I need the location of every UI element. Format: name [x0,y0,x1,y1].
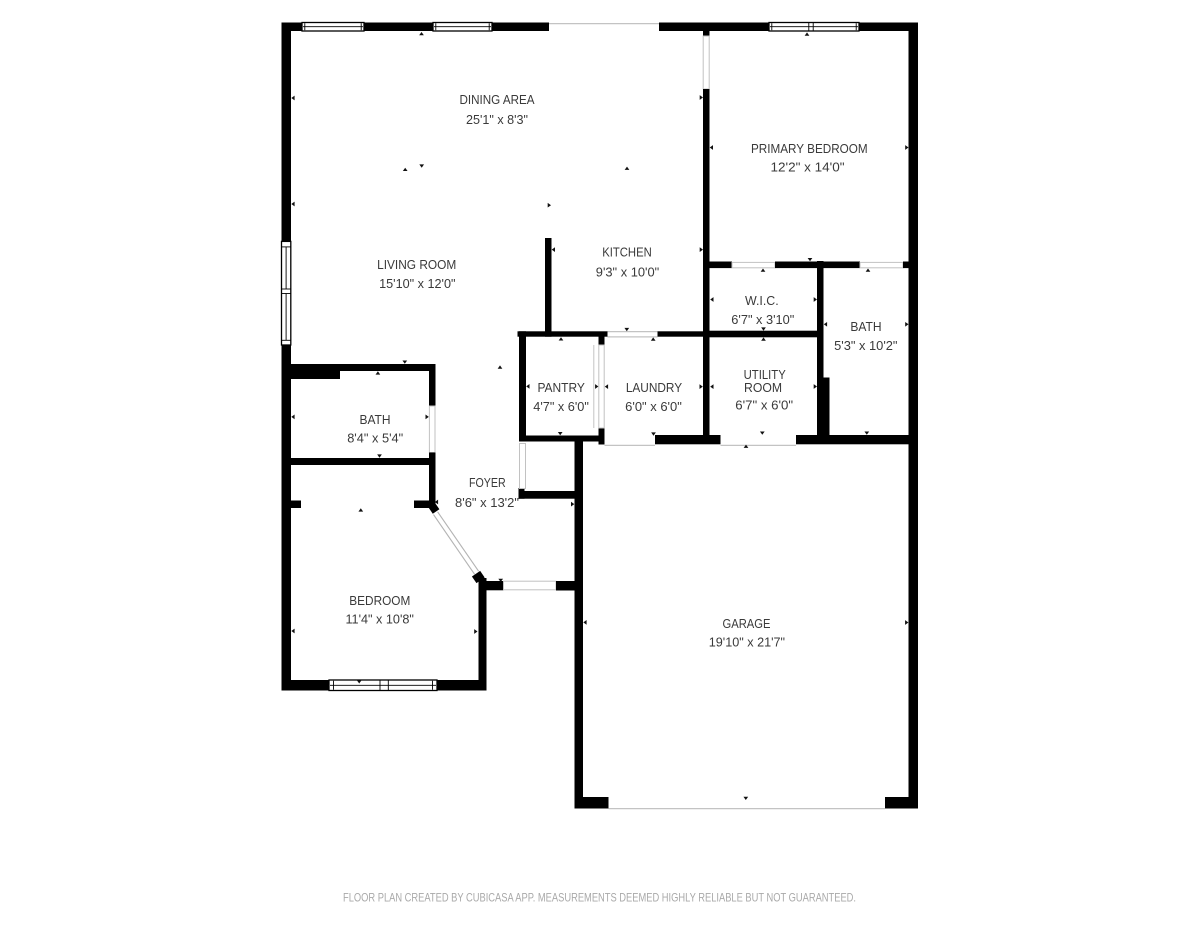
svg-text:8'6" x 13'2": 8'6" x 13'2" [455,495,519,510]
svg-text:GARAGE: GARAGE [723,616,771,631]
svg-text:6'7" x 3'10": 6'7" x 3'10" [731,312,794,327]
svg-text:19'10" x 21'7": 19'10" x 21'7" [709,635,786,650]
svg-text:BATH: BATH [850,319,881,334]
svg-text:LIVING ROOM: LIVING ROOM [377,257,456,272]
svg-text:PANTRY: PANTRY [537,380,585,395]
svg-text:ROOM: ROOM [744,380,782,395]
svg-text:FLOOR PLAN CREATED BY CUBICASA: FLOOR PLAN CREATED BY CUBICASA APP. MEAS… [343,892,856,905]
svg-text:15'10" x 12'0": 15'10" x 12'0" [379,276,456,291]
svg-text:BEDROOM: BEDROOM [349,593,410,608]
svg-text:KITCHEN: KITCHEN [602,245,652,260]
svg-text:FOYER: FOYER [469,475,506,490]
svg-text:LAUNDRY: LAUNDRY [626,380,683,395]
svg-text:25'1" x 8'3": 25'1" x 8'3" [466,112,528,127]
svg-text:BATH: BATH [360,412,391,427]
svg-text:W.I.C.: W.I.C. [745,293,779,308]
svg-text:8'4" x 5'4": 8'4" x 5'4" [347,430,403,445]
svg-text:9'3" x 10'0": 9'3" x 10'0" [596,265,660,280]
svg-text:PRIMARY BEDROOM: PRIMARY BEDROOM [751,141,868,156]
svg-text:11'4" x 10'8": 11'4" x 10'8" [345,612,414,627]
svg-text:5'3" x 10'2": 5'3" x 10'2" [834,338,898,353]
svg-text:6'0" x 6'0": 6'0" x 6'0" [625,399,682,414]
svg-text:6'7" x 6'0": 6'7" x 6'0" [735,398,793,413]
svg-text:DINING AREA: DINING AREA [460,92,535,107]
svg-text:4'7" x 6'0": 4'7" x 6'0" [533,399,589,414]
svg-text:12'2" x 14'0": 12'2" x 14'0" [771,159,845,174]
